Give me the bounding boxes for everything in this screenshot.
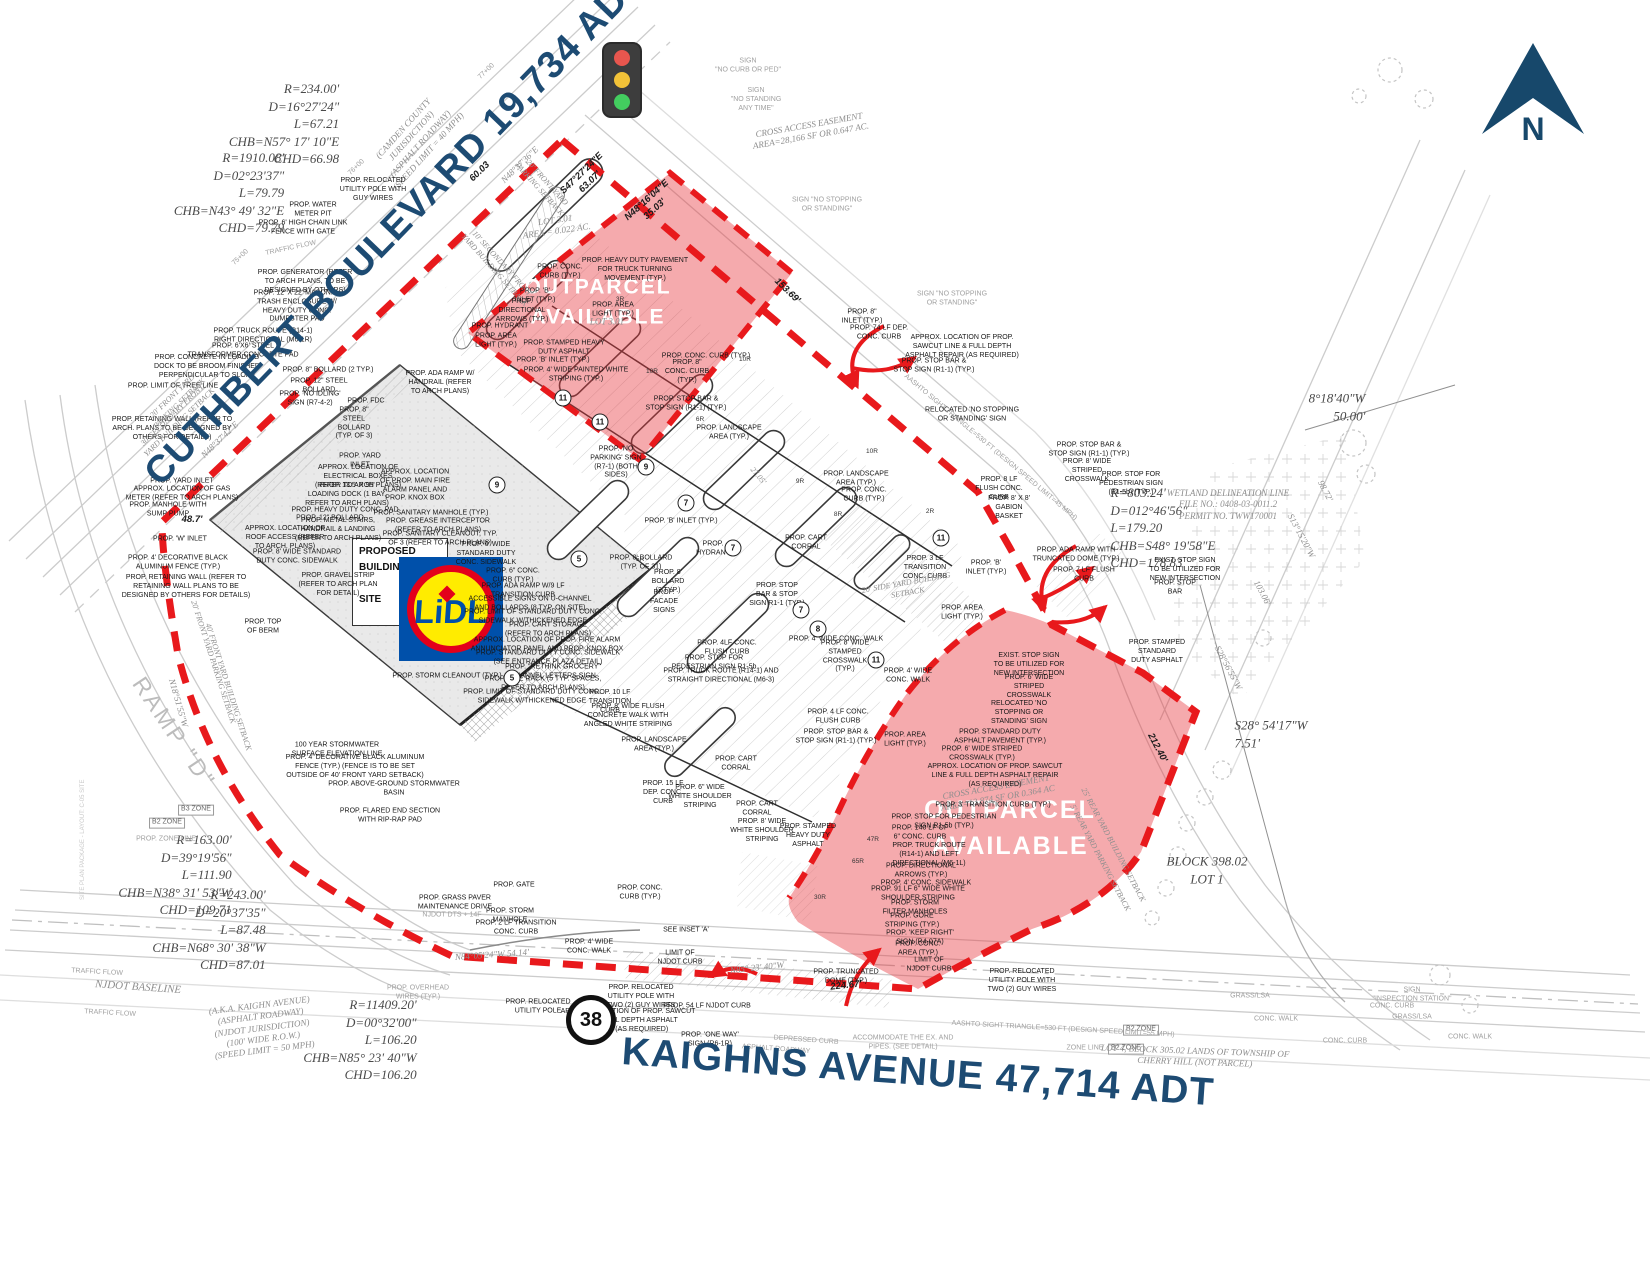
annotation: PROP. HEAVY DUTY PAVEMENT FOR TRUCK TURN… bbox=[582, 257, 688, 283]
annotation: PROP. TOP OF BERM bbox=[245, 618, 282, 636]
annotation: 76+00 bbox=[347, 158, 367, 178]
annotation: PROP. ABOVE-GROUND STORMWATER BASIN bbox=[328, 780, 460, 798]
annotation: PROP. 8' WIDE STANDARD DUTY CONC. SIDEWA… bbox=[253, 548, 341, 566]
annotation: R=234.00' D=16°27'24" L=67.21 CHB=N57° 1… bbox=[229, 80, 339, 168]
annotation: PROP. 4' WIDE CONC. WALK bbox=[565, 938, 613, 956]
annotation: PROP. CONC. AREA (TYP.) bbox=[895, 940, 940, 958]
annotation: PROP. AREA LIGHT (TYP.) bbox=[941, 604, 983, 622]
annotation: PROP. HEAVY DUTY CONC. PAD bbox=[291, 507, 398, 516]
annotation: 153.69' bbox=[772, 276, 803, 306]
annotation: CONC. WALK bbox=[1448, 1034, 1492, 1043]
annotation: PROP. GREASE INTERCEPTOR (REFER TO ARCH … bbox=[386, 517, 490, 535]
annotation: PROP. RELOCATED UTILITY POLE WITH TWO (2… bbox=[988, 968, 1057, 994]
annotation: 25' REAR YARD BUILDING SETBACK bbox=[1079, 786, 1148, 904]
annotation: 75+00 bbox=[231, 248, 251, 268]
annotation: PROP. FACADE SIGNS bbox=[650, 589, 678, 615]
parking-count-bubble: 11 bbox=[933, 530, 950, 547]
annotation: GRASS/LSA bbox=[1230, 993, 1270, 1002]
annotation: PROP. 12" BOLLARD bbox=[296, 515, 364, 524]
annotation: PROP. RELOCATED UTILITY POLE WITH TWO (2… bbox=[607, 984, 676, 1010]
annotation: R=163.00' D=39°19'56" L=111.90 CHB=N38° … bbox=[118, 831, 231, 919]
annotation: PROP. AREA LIGHT (TYP.) bbox=[475, 332, 517, 350]
annotation: N84°05'24"W 54.14' bbox=[455, 947, 530, 963]
annotation: PROP. STAMPED HEAVY DUTY ASPHALT bbox=[523, 339, 604, 357]
annotation: PROP. ADA RAMP W/9 LF TRANSITION CURB bbox=[482, 582, 565, 600]
annotation: PROP. 8' WIDE WHITE SHOULDER STRIPING bbox=[730, 818, 793, 844]
annotation: PROP. 6' WIDE STRIPED CROSSWALK (TYP.) bbox=[942, 745, 1023, 763]
annotation: TRAFFIC FLOW bbox=[265, 239, 317, 258]
annotation: BLOCK 398.02 LOT 1 bbox=[1167, 852, 1248, 887]
parking-count-bubble: 11 bbox=[592, 414, 609, 431]
annotation: SIGN "NO STOPPING OR STANDING" bbox=[792, 196, 862, 214]
annotation: PROP. 8' WIDE FLUSH CONCRETE WALK WITH A… bbox=[584, 703, 672, 729]
annotation: PROP. 4' WIDE PAINTED WHITE STRIPING (TY… bbox=[524, 366, 629, 384]
annotation: 98.72' bbox=[1315, 479, 1335, 504]
route-38-shield: 38 bbox=[566, 995, 616, 1045]
annotation: PROP. STOP FOR PEDESTRIAN SIGN R1-5b bbox=[672, 654, 757, 672]
annotation: R=1910.08' D=02°23'37" L=79.79 CHB=N43° … bbox=[174, 149, 284, 237]
annotation: 47R bbox=[867, 836, 879, 844]
annotation: PROP. GRASS PAVER MAINTENANCE DRIVE bbox=[418, 894, 492, 912]
traffic-signal-red-lamp bbox=[614, 50, 630, 66]
annotation: PROP. GORE STRIPING (TYP.) bbox=[885, 912, 939, 930]
annotation: 8°18'40"W 50.00' bbox=[1309, 389, 1366, 424]
annotation: PROP. 8" INLET (TYP.) bbox=[842, 308, 883, 326]
annotation: PROP. 'B' INLET (TYP.) bbox=[516, 357, 589, 366]
annotation: PROP. DIRECTIONAL ARROWS (TYP.) bbox=[496, 298, 549, 324]
annotation: PROP. DIRECTIONAL ARROWS (TYP.) bbox=[886, 862, 956, 880]
annotation: PROP. CONC. CURB (TYP.) bbox=[662, 353, 750, 362]
annotation: SIGN "NO CURB OR PED" bbox=[715, 57, 781, 75]
annotation: PROP. 'NO IDLING' SIGN (R7-4-2) bbox=[279, 390, 340, 408]
annotation: APPROX. LOCATION OF PROP. FIRE ALARM ANN… bbox=[471, 636, 623, 654]
annotation: 10R bbox=[739, 356, 751, 364]
annotation: SIGN "NO STANDING ANY TIME" bbox=[731, 87, 782, 113]
annotation: S28° 54'17"W 7.51' bbox=[1234, 716, 1307, 751]
annotation: N48°37'36"E bbox=[499, 144, 541, 185]
annotation: RELOCATED 'NO STOPPING OR STANDING' SIGN bbox=[925, 406, 1019, 424]
annotation: 9R bbox=[796, 478, 804, 486]
annotation: PROP. LANDSCAPE AREA (TYP.) bbox=[823, 470, 888, 488]
annotation: APPROX. LOCATION OF ROOF ACCESS (REFER T… bbox=[245, 525, 325, 551]
annotation: PROP. CART CORRAL bbox=[736, 800, 778, 818]
annotation: PROP. 3 LF TRANSITION CONC. CURB bbox=[903, 555, 947, 581]
annotation: PROP. STANDARD DUTY CONC. SIDEWALK (SEE … bbox=[476, 649, 620, 667]
annotation: N85° 23' 40"W bbox=[729, 960, 784, 977]
annotation: PROP. GATE bbox=[493, 882, 534, 891]
annotation: PROP. 12" STEEL BOLLARD bbox=[290, 377, 347, 395]
traffic-signal-green-lamp bbox=[614, 94, 630, 110]
north-arrow-icon: N bbox=[1478, 40, 1588, 148]
annotation: 103.06' bbox=[1251, 579, 1273, 608]
annotation: PROP. STORM FILTER MANHOLES bbox=[883, 899, 948, 917]
annotation: 27.05' bbox=[748, 465, 768, 487]
annotation: LOT 3.01 AREA = 0.022 AC. bbox=[521, 210, 592, 242]
annotation: PROP. GRAVEL STRIP (REFER TO ARCH PLAN F… bbox=[298, 572, 377, 598]
annotation: PROP. 4 LF CONC. FLUSH CURB bbox=[807, 708, 868, 726]
annotation: PROP. STOP BAR bbox=[1154, 579, 1196, 597]
annotation: PROP. 7 LF FLUSH CURB bbox=[1053, 566, 1115, 584]
annotation: PROP. 8' X 8' GABION BASKET bbox=[988, 495, 1030, 521]
annotation: ZONE LINE bbox=[1067, 1045, 1104, 1054]
annotation: TRAFFIC FLOW bbox=[84, 1008, 136, 1019]
annotation: 224.67' bbox=[830, 978, 862, 993]
annotation: PROP. RETAINING WALL (REFER TO RETAINING… bbox=[122, 574, 251, 600]
annotation: PROP. 4' DECORATIVE BLACK ALUMINUM FENCE… bbox=[286, 754, 425, 780]
north-arrow-letter: N bbox=[1521, 111, 1544, 147]
annotation: PROP. STAMPED STANDARD DUTY ASPHALT bbox=[1129, 639, 1185, 665]
annotation: PROP. YARD INLET bbox=[339, 452, 381, 470]
annotation: PROP. FLARED END SECTION WITH RIP-RAP PA… bbox=[340, 807, 440, 825]
annotation: 48.7' bbox=[182, 514, 203, 526]
annotation: 10' SECONDARY FRONT YARD BUILDING SETBAC… bbox=[459, 225, 537, 309]
annotation: B2 ZONE bbox=[1123, 1025, 1159, 1036]
annotation: CONC. WALK bbox=[1254, 1016, 1298, 1025]
annotation: PROP. STOP FOR PEDESTRIAN SIGN (R1-5b) (… bbox=[1099, 471, 1163, 497]
annotation: PROP. LIMIT OF STANDARD DUTY CONC. SIDEW… bbox=[464, 608, 602, 626]
annotation: CONC. CURB bbox=[1323, 1038, 1367, 1047]
annotation: PROP. 54 LF NJDOT CURB bbox=[663, 1003, 751, 1012]
parking-count-bubble: 7 bbox=[678, 495, 695, 512]
annotation: PROP. HYDRANT bbox=[472, 323, 529, 332]
annotation: PROP. STOP FOR PEDESTRIAN SIGN R1-5b (TY… bbox=[891, 813, 996, 831]
annotation: PROP. 6' WIDE STANDARD DUTY CONC. SIDEWA… bbox=[456, 541, 516, 567]
annotation: B2 ZONE bbox=[1108, 1044, 1144, 1055]
annotation: PROP. LIMIT OF STANDARD DUTY CONC. SIDEW… bbox=[463, 688, 601, 706]
annotation: 20' FRONT YARD PARKING SETBACK bbox=[513, 154, 574, 218]
annotation: RELOCATED 'NO STOPPING OR STANDING' SIGN bbox=[991, 700, 1047, 726]
annotation: PROP. AREA LIGHT (TYP.) bbox=[884, 731, 926, 749]
annotation: PROP. CONC. CURB (TYP.) bbox=[841, 486, 886, 504]
annotation: PROP. MANHOLE WITH SUMP PUMP bbox=[129, 501, 206, 519]
annotation: PROP. 4' WIDE CONC. WALK bbox=[789, 636, 883, 645]
annotation: PROP. STANDARD DUTY ASPHALT PAVEMENT (TY… bbox=[954, 728, 1046, 746]
annotation: PROP. 6" CONC. CURB (TYP.) bbox=[486, 567, 540, 585]
parking-count-bubble: 5 bbox=[571, 551, 588, 568]
annotation: EXIST. STOP SIGN TO BE UTILIZED FOR NEW … bbox=[1150, 557, 1221, 583]
annotation: PROP. 8' BOLLARD (TYP. OF 31) bbox=[610, 554, 673, 572]
annotation: AASHTO SIGHT TRIANGLE=530 FT (DESIGN SPE… bbox=[902, 373, 1079, 523]
annotation: CROSS ACCESS EASEMENT AREA=13,874 SF OR … bbox=[938, 772, 1056, 814]
annotation: PROP. ZONE LINE bbox=[136, 836, 196, 845]
annotation: PROP. METAL STAIRS, HANDRAIL & LANDING (… bbox=[295, 517, 381, 543]
annotation: PROP. 'B' INLET (TYP.) bbox=[966, 559, 1007, 577]
annotation: (A.K.A. KAIGHN AVENUE) (ASPHALT ROADWAY)… bbox=[208, 994, 316, 1062]
parking-count-bubble: 11 bbox=[555, 390, 572, 407]
annotation: PROP. 2 LF TRANSITION CONC. CURB bbox=[475, 919, 556, 937]
site-plan-canvas: PROPOSED BUILDING SITE LiDL R=234.00' D=… bbox=[0, 0, 1650, 1275]
annotation: PROP. 6" WIDE WHITE SHOULDER STRIPING bbox=[668, 784, 731, 810]
annotation: 77+00 bbox=[477, 62, 497, 82]
annotation: PROP. 4LF CONC. FLUSH CURB bbox=[697, 639, 756, 657]
annotation: 2R bbox=[926, 508, 934, 516]
annotation: PROP. LANDSCAPE AREA (TYP.) bbox=[696, 424, 761, 442]
annotation: 5R bbox=[636, 556, 644, 564]
annotation: 100 YEAR STORMWATER SURFACE ELEVATION LI… bbox=[292, 741, 383, 759]
annotation: 3R bbox=[616, 296, 624, 304]
annotation: PROP. 3' TRANSITION CURB (TYP.) bbox=[935, 802, 1050, 811]
annotation: PROP. 74 LF DEP. CONC. CURB bbox=[850, 324, 908, 342]
annotation: 30R bbox=[814, 894, 826, 902]
annotation: 65R bbox=[852, 858, 864, 866]
annotation: PROP. 'W' INLET bbox=[153, 536, 207, 545]
annotation: 20' FRONT YARD PARKING SETBACK bbox=[188, 599, 237, 725]
annotation: PROP. STOP BAR & STOP SIGN (R1-1) (TYP.) bbox=[796, 728, 877, 746]
annotation: PROP. SANITARY MANHOLE (TYP.) bbox=[374, 510, 489, 519]
annotation: PROP. LANDSCAPE AREA (TYP.) bbox=[621, 736, 686, 754]
parking-count-bubble: 7 bbox=[793, 602, 810, 619]
annotation: LIMIT OF NJDOT CURB bbox=[658, 949, 703, 967]
annotation: R=11409.20' D=00°32'00" L=106.20 CHB=N85… bbox=[303, 996, 416, 1084]
annotation: PROP. 140 LF OF 6" CONC. CURB bbox=[892, 824, 948, 842]
annotation: S28°56'55"W bbox=[1212, 644, 1245, 692]
annotation: PROP. 8' BOLLARD (2 TYP.) bbox=[652, 569, 685, 595]
annotation: N18°51'55"W bbox=[166, 678, 191, 729]
parking-count-bubble: 9 bbox=[489, 477, 506, 494]
annotation: NJDOT BASELINE bbox=[94, 978, 181, 998]
parking-count-bubble: 8 bbox=[810, 621, 827, 638]
annotation: PROP. 6' WIDE STRIPED CROSSWALK bbox=[1005, 674, 1053, 700]
annotation: PROP. OVERHEAD WIRES (TYP.) bbox=[387, 984, 449, 1002]
annotation: APPROX. LOCATION OF PROP. SAWCUT LINE & … bbox=[928, 763, 1063, 789]
annotation: PROP. CART CORRAL bbox=[785, 534, 827, 552]
annotation: PROP. CART CORRAL bbox=[715, 755, 757, 773]
traffic-signal-yellow-lamp bbox=[614, 72, 630, 88]
annotation: PROP. STOP BAR & STOP SIGN (R1-1) (TYP.) bbox=[646, 395, 727, 413]
annotation: CONC. CURB bbox=[1370, 1003, 1414, 1012]
annotation: APPROX. LOCATION OF PROP. MAIN FIRE ALAR… bbox=[380, 469, 450, 504]
annotation: 20' SIDE YARD BUILDING SETBACK bbox=[861, 570, 953, 605]
annotation: PROP. 4' DECORATIVE BLACK ALUMINUM FENCE… bbox=[128, 554, 228, 572]
route-number: 38 bbox=[580, 1009, 602, 1032]
annotation: 5' REAR YARD PARKING SETBACK bbox=[1068, 803, 1133, 913]
annotation: PROP. FDC bbox=[347, 398, 384, 407]
annotation: WETLAND DELINEATION LINE FILE NO.: 0408-… bbox=[1167, 488, 1289, 522]
annotation: R=803.24' D=012°46'56" L=179.20 CHB=S48°… bbox=[1111, 484, 1216, 572]
annotation: APPROX. LOCATION OF PROP. SAWCUT LINE & … bbox=[905, 334, 1019, 360]
annotation: PROP. LIMIT OF TREE LINE bbox=[128, 383, 218, 392]
annotation: PROP. 4' CONC. SIDEWALK bbox=[881, 880, 971, 889]
annotation: 8R bbox=[834, 511, 842, 519]
annotation: PROP. 13.5' X 95' LOADING DOCK (1 BAY, R… bbox=[305, 482, 389, 508]
annotation: B2 ZONE bbox=[149, 818, 185, 829]
annotation: GRASS/LSA bbox=[1392, 1014, 1432, 1023]
annotation: PROP. 6' HIGH CHAIN LINK FENCE WITH GATE bbox=[259, 219, 348, 237]
annotation: TRAFFIC FLOW bbox=[71, 967, 123, 978]
annotation: N48°16'04"E 35.03' bbox=[622, 178, 679, 233]
annotation: S13°15'20"W bbox=[1285, 512, 1318, 560]
annotation: APPROX. LOCATION OF GAS METER (REFER TO … bbox=[126, 485, 239, 503]
annotation: 10R bbox=[646, 368, 658, 376]
annotation: 212.40' bbox=[1144, 731, 1169, 764]
annotation: PROP. STORM CLEANOUT (TYP.) bbox=[392, 673, 501, 682]
annotation: PROP. 15 LF DEP. CONC. CURB bbox=[643, 780, 684, 806]
annotation: PROP. ADA RAMP W/ HANDRAIL (REFER TO ARC… bbox=[406, 370, 475, 396]
annotation: PROP. ADA RAMP WITH TRUNCATED DOME (TYP.… bbox=[1033, 546, 1120, 564]
annotation: PROP. 8" BOLLARD (2 TYP.) bbox=[283, 367, 374, 376]
annotation: B3 ZONE bbox=[178, 805, 214, 816]
parking-count-bubble: 7 bbox=[725, 540, 742, 557]
annotation: PROP. 'B' INLET (TYP.) bbox=[515, 287, 556, 305]
annotation: 10R bbox=[866, 448, 878, 456]
annotation: R=243.00' D=20°37'35" L=87.48 CHB=N68° 3… bbox=[152, 886, 265, 974]
annotation: PROP. CART STORAGE (REFER TO ARCH PLANS) bbox=[505, 621, 591, 639]
annotation: PROP. STORM MANHOLE bbox=[486, 907, 534, 925]
annotation: PROP. STOP BAR & STOP SIGN (R1-1) (TYP.) bbox=[1049, 441, 1130, 459]
annotation: EXIST. STOP SIGN TO BE UTILIZED FOR NEW … bbox=[994, 652, 1065, 678]
annotation: ACCESSIBLE SIGNS ON U-CHANNEL AND BOLLAR… bbox=[469, 595, 592, 613]
annotation: SEE INSET 'A' bbox=[663, 927, 709, 936]
annotation: PROP. TRUNCATED DOME (TYP.) bbox=[813, 968, 878, 986]
annotation: PROP. 10 LF TRANSITION CURB bbox=[589, 689, 631, 715]
annotation: LIMIT OF NJDOT CURB bbox=[907, 956, 952, 974]
annotation: PROP. 91 LF 6" WIDE WHITE SHOULDER STRIP… bbox=[871, 885, 965, 903]
annotation: LOT 3.01 bbox=[590, 316, 624, 327]
annotation: PROP. 'B' INLET (TYP.) bbox=[644, 518, 717, 527]
annotation: PROP. CONC. CURB (TYP.) bbox=[617, 884, 662, 902]
annotation: PROP. TRUCK ROUTE (R14-1) AND LEFT DIREC… bbox=[892, 842, 965, 868]
annotation: PROP. TRUCK ROUTE (R14-1) AND STRAIGHT D… bbox=[663, 667, 778, 685]
annotation: 6R bbox=[696, 416, 704, 424]
traffic-signal-icon bbox=[602, 42, 642, 118]
parking-count-bubble: 9 bbox=[638, 459, 655, 476]
annotation: PROP. 8' WIDE STAMPED CROSSWALK (TYP.) bbox=[821, 640, 869, 675]
annotation: S47°27'24"E 63.07' bbox=[558, 150, 614, 205]
annotation: SIGN "INSPECTION STATION" bbox=[1373, 986, 1452, 1004]
annotation: PROP. STAMPED HEAVY DUTY ASPHALT bbox=[780, 823, 836, 849]
annotation: CROSS ACCESS EASEMENT AREA=28,166 SF OR … bbox=[750, 110, 870, 153]
annotation: PROP. 8" STEEL BOLLARD (TYP. OF 3) bbox=[336, 407, 373, 442]
annotation: AASHTO SIGHT TRIANGLE=530 FT (DESIGN SPE… bbox=[951, 1020, 1174, 1040]
annotation: PROP. BIKE RACK (5 TYP. SPACES, REFER TO… bbox=[485, 675, 602, 693]
annotation: PROP. CONC. CURB (TYP.) bbox=[537, 263, 582, 281]
annotation: 40' FRONT YARD BUILDING SETBACK bbox=[203, 622, 254, 752]
annotation: PROP. AREA LIGHT (TYP.) bbox=[592, 301, 634, 319]
annotation: PROP. WATER METER PIT bbox=[289, 201, 336, 219]
annotation: PROP. 'NO PARKING' SIGN (R7-1) (BOTH SID… bbox=[590, 446, 641, 481]
annotation: PROP. 8" CONC. CURB (TYP.) bbox=[665, 359, 709, 385]
annotation: PROP. 8 LF FLUSH CONC. CURB bbox=[975, 476, 1022, 502]
parking-count-bubble: 5 bbox=[504, 670, 521, 687]
annotation: PROP. 8' WIDE STRIPED CROSSWALK bbox=[1063, 458, 1111, 484]
annotation: PROP. STOP BAR & STOP SIGN (R1-1) (TYP.) bbox=[894, 357, 975, 375]
annotation: SIGN "NO STOPPING OR STANDING" bbox=[917, 290, 987, 308]
annotation: PROP. SANITARY CLEANOUT, TYP. OF 3 (REFE… bbox=[383, 530, 498, 548]
parking-count-bubble: 11 bbox=[868, 652, 885, 669]
annotation: PROP. 4' WIDE CONC. WALK bbox=[884, 667, 932, 685]
annotation: PROP. 'KEEP RIGHT' SIGN (R4-07A) bbox=[886, 929, 954, 947]
annotation: NJDOT DTS + 14F bbox=[422, 912, 481, 921]
annotation: APPROX. LOCATION OF ELECTRICAL BOXES (RE… bbox=[315, 464, 401, 490]
annotation: PROP. RELOCATED UTILITY POLE bbox=[505, 998, 570, 1016]
